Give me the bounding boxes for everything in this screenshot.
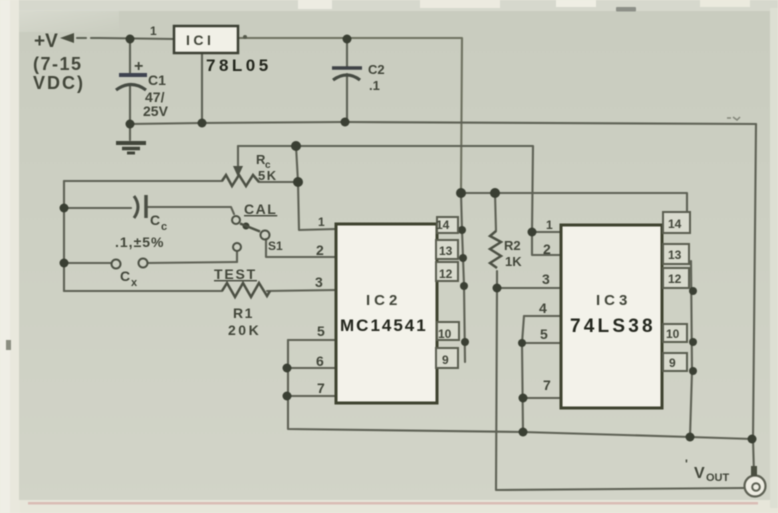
svg-text:c: c (161, 221, 167, 233)
svg-text:CAL: CAL (244, 201, 277, 217)
svg-text:78L05: 78L05 (206, 56, 272, 75)
svg-text:S1: S1 (268, 239, 283, 253)
svg-text:IC3: IC3 (596, 292, 631, 309)
svg-text:R2: R2 (504, 238, 521, 253)
svg-text:C: C (150, 212, 160, 228)
svg-text:9: 9 (669, 356, 676, 370)
svg-text:OUT: OUT (706, 472, 730, 484)
svg-text:14: 14 (668, 217, 682, 231)
svg-text:13: 13 (439, 244, 453, 258)
svg-text:C: C (120, 268, 130, 284)
svg-text:TEST: TEST (214, 266, 257, 282)
svg-text:4: 4 (539, 300, 547, 316)
svg-text:5: 5 (540, 326, 548, 342)
svg-text:MC14541: MC14541 (340, 316, 428, 335)
svg-text:12: 12 (668, 272, 682, 286)
svg-text:74LS38: 74LS38 (570, 316, 656, 337)
svg-text:10: 10 (666, 327, 680, 341)
svg-text:': ' (685, 457, 688, 471)
svg-text:5K: 5K (258, 168, 278, 183)
svg-text:C2: C2 (368, 62, 385, 77)
svg-text:R1: R1 (233, 305, 254, 321)
svg-text:9: 9 (442, 353, 449, 367)
svg-text:13: 13 (668, 248, 682, 262)
svg-text:12: 12 (439, 267, 453, 281)
svg-text:5: 5 (317, 323, 325, 339)
svg-text:10: 10 (438, 327, 452, 341)
svg-text:+: + (134, 58, 143, 75)
svg-text:7: 7 (317, 380, 325, 396)
svg-text:ICI: ICI (186, 32, 214, 48)
svg-text:1: 1 (546, 218, 553, 232)
svg-text:C1: C1 (148, 72, 166, 88)
svg-text:V: V (694, 465, 705, 482)
svg-text:.1: .1 (369, 78, 380, 93)
svg-text:1: 1 (150, 24, 157, 38)
svg-text:IC2: IC2 (366, 292, 401, 309)
svg-text:(7-15: (7-15 (33, 54, 83, 74)
svg-text:7: 7 (543, 377, 551, 393)
svg-text:3: 3 (315, 274, 323, 290)
svg-text:1K: 1K (505, 254, 522, 269)
svg-text:1: 1 (318, 215, 325, 229)
svg-text:25V: 25V (143, 103, 169, 119)
svg-text:2: 2 (543, 241, 551, 257)
svg-text:3: 3 (542, 271, 550, 287)
svg-text:6: 6 (316, 353, 324, 369)
svg-text:2: 2 (316, 242, 324, 258)
svg-text:VDC): VDC) (33, 73, 85, 93)
svg-text:14: 14 (436, 218, 450, 232)
svg-text:x: x (131, 277, 138, 289)
svg-text:20K: 20K (228, 322, 261, 338)
svg-text:+V: +V (34, 31, 58, 52)
svg-text:.1,±5%: .1,±5% (115, 234, 164, 250)
